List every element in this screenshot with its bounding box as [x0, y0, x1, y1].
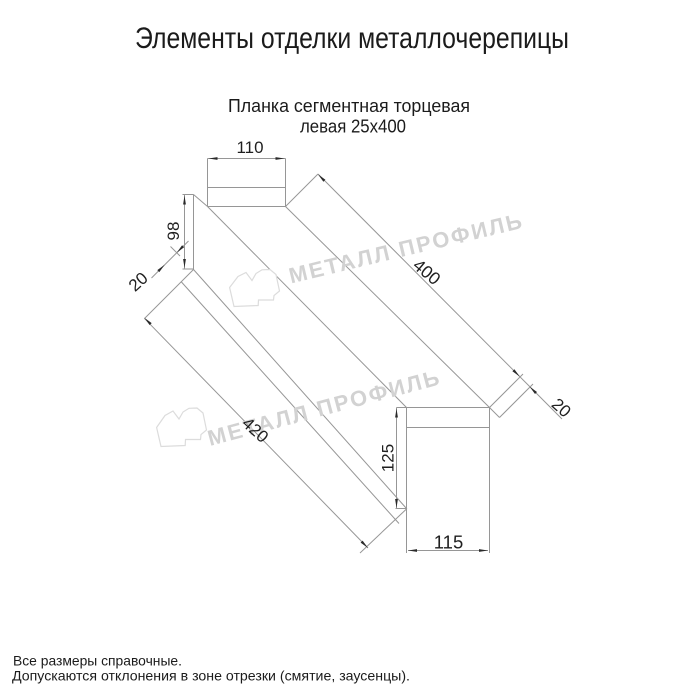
svg-text:110: 110: [237, 138, 264, 157]
svg-text:115: 115: [434, 532, 464, 553]
svg-text:левая 25х400: левая 25х400: [300, 117, 406, 137]
svg-text:Планка сегментная торцевая: Планка сегментная торцевая: [228, 96, 470, 116]
svg-text:98: 98: [164, 222, 183, 241]
svg-text:Допускаются отклонения в зоне: Допускаются отклонения в зоне отрезки (с…: [12, 668, 410, 684]
svg-text:Все размеры справочные.: Все размеры справочные.: [13, 653, 182, 669]
svg-text:125: 125: [379, 444, 398, 472]
svg-text:Элементы отделки металлочерепи: Элементы отделки металлочерепицы: [135, 22, 569, 55]
